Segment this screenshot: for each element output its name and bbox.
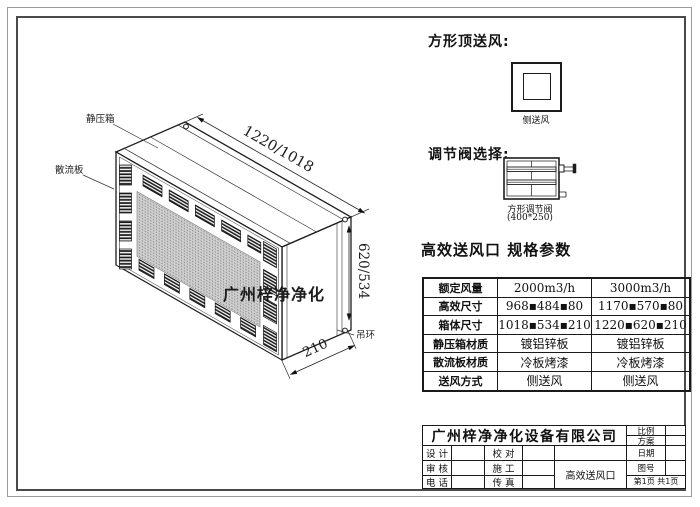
field-review: 审 核: [423, 461, 451, 475]
spec-value: 侧送风: [498, 371, 592, 390]
spec-label: 额定风量: [423, 278, 498, 297]
spec-row: 额定风量 2000m3/h 3000m3/h: [423, 278, 690, 297]
spec-value: 2000m3/h: [498, 278, 592, 297]
label-diffuser-plate: 散流板: [55, 164, 84, 176]
middle-blank-cell: [555, 446, 626, 460]
field-construction-value: [523, 461, 554, 475]
spec-row: 高效尺寸 968▪484▪80 1170▪570▪80: [423, 297, 690, 316]
spec-value: 968▪484▪80: [498, 297, 592, 316]
spec-row: 散流板材质 冷板烤漆 冷板烤漆: [423, 353, 690, 372]
field-scheme-value: [666, 436, 685, 445]
spec-value: 镀铝锌板: [498, 334, 592, 353]
spec-label: 静压箱材质: [423, 334, 498, 353]
field-scale: 比例: [627, 426, 665, 435]
field-phone-value: [452, 476, 484, 489]
label-lifting-ring: 吊环: [356, 330, 375, 341]
spec-row: 箱体尺寸 1018▪534▪210 1220▪620▪210: [423, 316, 690, 335]
field-check-value: [523, 446, 554, 460]
title-block: 广州梓净净化设备有限公司 比例 方案 设 计 校 对 日期 审 核 施 工 高效…: [422, 425, 686, 489]
spec-table: 额定风量 2000m3/h 3000m3/h 高效尺寸 968▪484▪80 1…: [422, 277, 691, 392]
field-scheme: 方案: [627, 436, 665, 445]
field-date-value: [666, 446, 685, 460]
field-drawing-no: 图号: [627, 461, 665, 475]
spec-label: 高效尺寸: [423, 297, 498, 316]
spec-value: 侧送风: [592, 371, 691, 390]
damper-diagram: [498, 154, 580, 204]
page-indicator: 第1页 共1页: [627, 476, 685, 489]
field-fax: 传 真: [485, 476, 522, 489]
spec-value: 冷板烤漆: [592, 353, 691, 372]
field-phone: 电 话: [423, 476, 451, 489]
drawing-sheet: 1220/1018 620/534 210 静压箱 散流板 吊环 广州梓净净化 …: [0, 0, 700, 507]
field-design: 设 计: [423, 446, 451, 460]
spec-value: 镀铝锌板: [592, 334, 691, 353]
field-review-value: [452, 461, 484, 475]
dimension-height: 620/534: [349, 226, 371, 320]
spec-row: 静压箱材质 镀铝锌板 镀铝锌板: [423, 334, 690, 353]
spec-value: 3000m3/h: [592, 278, 691, 297]
square-outlet-caption: 侧送风: [506, 113, 566, 126]
damper-size-caption: (400*250): [490, 213, 570, 223]
field-construction: 施 工: [485, 461, 522, 475]
spec-label: 送风方式: [423, 371, 498, 390]
field-fax-value: [523, 476, 554, 489]
spec-value: 1220▪620▪210: [592, 316, 691, 335]
damper-handle: [559, 164, 576, 173]
field-drawing-no-value: [666, 461, 685, 475]
spec-value: 1018▪534▪210: [498, 316, 592, 335]
watermark: 广州梓净净化: [223, 285, 325, 304]
field-design-value: [452, 446, 484, 460]
field-date: 日期: [627, 446, 665, 460]
spec-label: 箱体尺寸: [423, 316, 498, 335]
spec-label: 散流板材质: [423, 353, 498, 372]
top-supply-heading: 方形顶送风:: [428, 31, 510, 51]
field-scale-value: [666, 426, 685, 435]
spec-row: 送风方式 侧送风 侧送风: [423, 371, 690, 390]
square-outlet-inner: [523, 73, 551, 100]
product-name: 高效送风口: [555, 461, 626, 489]
spec-table-title: 高效送风口 规格参数: [421, 239, 571, 260]
spec-value: 冷板烤漆: [498, 353, 592, 372]
spec-value: 1170▪570▪80: [592, 297, 691, 316]
field-check: 校 对: [485, 446, 522, 460]
company-name: 广州梓净净化设备有限公司: [423, 426, 626, 445]
dim-height-text: 620/534: [355, 243, 371, 299]
label-static-pressure-box: 静压箱: [86, 113, 115, 125]
